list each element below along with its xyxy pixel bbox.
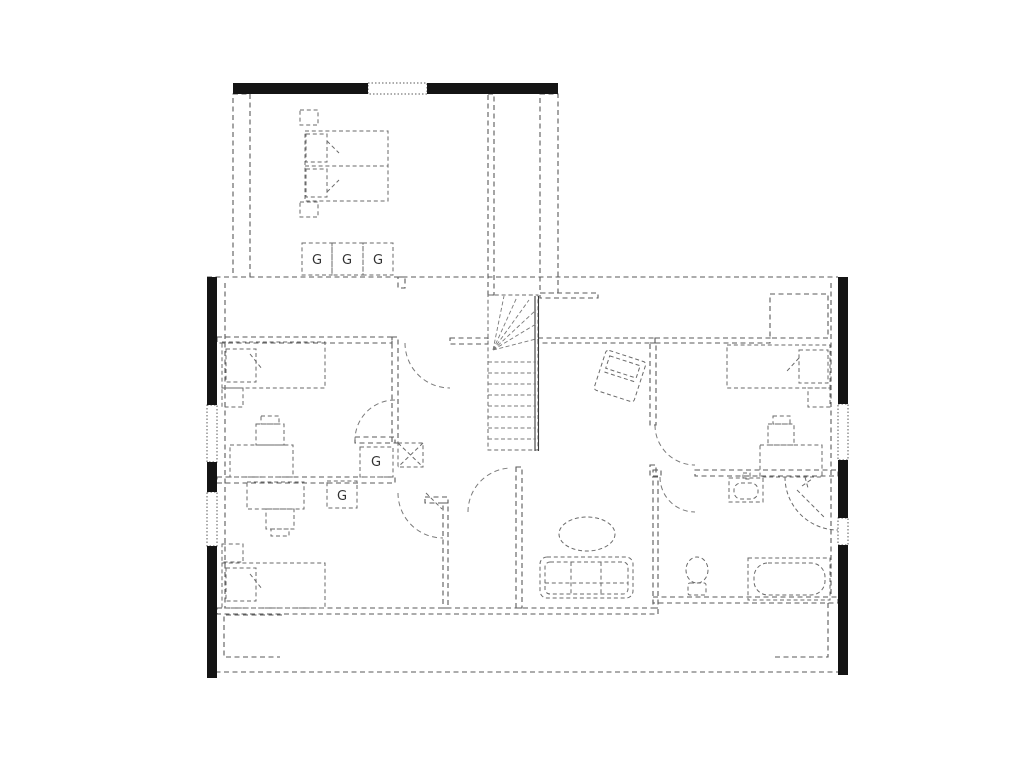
wall-closet-right xyxy=(516,467,522,608)
window-left-2 xyxy=(207,492,217,546)
coffee-table xyxy=(559,517,615,551)
wall-wing-partition xyxy=(488,94,494,295)
window-top xyxy=(368,83,427,94)
shower-screen xyxy=(785,477,838,530)
pillow xyxy=(306,134,327,162)
wall-left-south xyxy=(217,477,395,483)
pillow xyxy=(226,568,256,601)
blanket-fold xyxy=(787,358,799,371)
door-arc-left-bedroom xyxy=(355,400,395,440)
duct-shaft-cross xyxy=(398,443,423,467)
bathtub-inner xyxy=(754,563,825,595)
armchair xyxy=(594,350,647,403)
pillow xyxy=(306,169,327,197)
wall-wing-right xyxy=(540,94,558,293)
desk xyxy=(230,445,293,477)
chair-back xyxy=(271,529,289,536)
floor-plan-page: GGGGG xyxy=(0,0,1024,768)
door-arc-closet xyxy=(468,468,510,512)
wall-rightroom-top xyxy=(655,338,770,343)
single-bed xyxy=(727,345,830,388)
stairs-outline xyxy=(488,295,538,450)
sofa-inner xyxy=(545,562,628,594)
nightstand xyxy=(808,388,830,407)
eave-closet-right xyxy=(772,603,828,657)
wall-closet-left xyxy=(443,503,448,608)
wall-hall-vertical xyxy=(392,337,398,443)
window-left-1 xyxy=(207,405,217,462)
toilet-bowl xyxy=(686,557,708,583)
desk xyxy=(247,482,304,509)
wall-main-south xyxy=(217,608,658,614)
door-leaf-lower-bedroom xyxy=(426,493,442,509)
stairs-winders xyxy=(493,296,536,350)
pillow xyxy=(799,350,828,383)
wall-hall-short xyxy=(355,437,395,443)
pillow xyxy=(226,349,256,382)
wall-hall-top-b xyxy=(450,338,488,344)
eave-closet-left xyxy=(224,615,282,657)
armchair-seat-line xyxy=(604,372,634,382)
wall-right-vertical xyxy=(650,343,656,425)
chair-back xyxy=(773,416,790,424)
window-right-1 xyxy=(838,404,848,460)
floor-plan-svg: GGGGG xyxy=(0,0,1024,768)
wall-wing-left xyxy=(233,94,250,277)
wall-bath-top-b xyxy=(695,470,838,476)
chair-back xyxy=(261,416,279,424)
wall-alcove xyxy=(770,294,828,338)
stairs-treads xyxy=(488,362,536,439)
wall-wing-step xyxy=(398,277,405,288)
nightstand xyxy=(300,202,318,217)
chair xyxy=(256,424,284,445)
door-arc-bathroom xyxy=(660,477,695,512)
chair xyxy=(768,424,794,445)
sofa xyxy=(540,557,633,598)
single-bed xyxy=(222,342,325,388)
wall-landing-top xyxy=(540,293,598,298)
wardrobe-label: G xyxy=(337,489,347,504)
sofa-seat-dividers xyxy=(571,562,601,594)
wardrobe-label: G xyxy=(373,253,383,268)
nightstand xyxy=(300,110,318,125)
door-arc-hall-top xyxy=(405,343,450,388)
single-bed xyxy=(222,563,325,608)
armchair-back xyxy=(606,356,640,378)
shower-tap xyxy=(802,477,812,488)
wall-bath-top-a xyxy=(653,470,661,476)
washbasin-bowl xyxy=(734,483,758,499)
desk xyxy=(760,445,822,477)
wardrobe-label: G xyxy=(371,455,381,470)
wall-closet-top-piece xyxy=(425,497,448,503)
shower-diagonal xyxy=(797,490,824,517)
door-arc-right-bedroom xyxy=(655,425,695,465)
door-arc-lower-bedroom xyxy=(398,493,443,538)
wardrobe-label: G xyxy=(342,253,352,268)
wall-bath-left xyxy=(653,477,658,608)
exterior-walls xyxy=(207,83,848,678)
toilet-tank xyxy=(688,583,706,595)
wall-hall-top-c xyxy=(538,338,655,343)
window-right-2 xyxy=(838,518,848,545)
chair xyxy=(266,509,294,529)
wardrobe-label: G xyxy=(312,253,322,268)
